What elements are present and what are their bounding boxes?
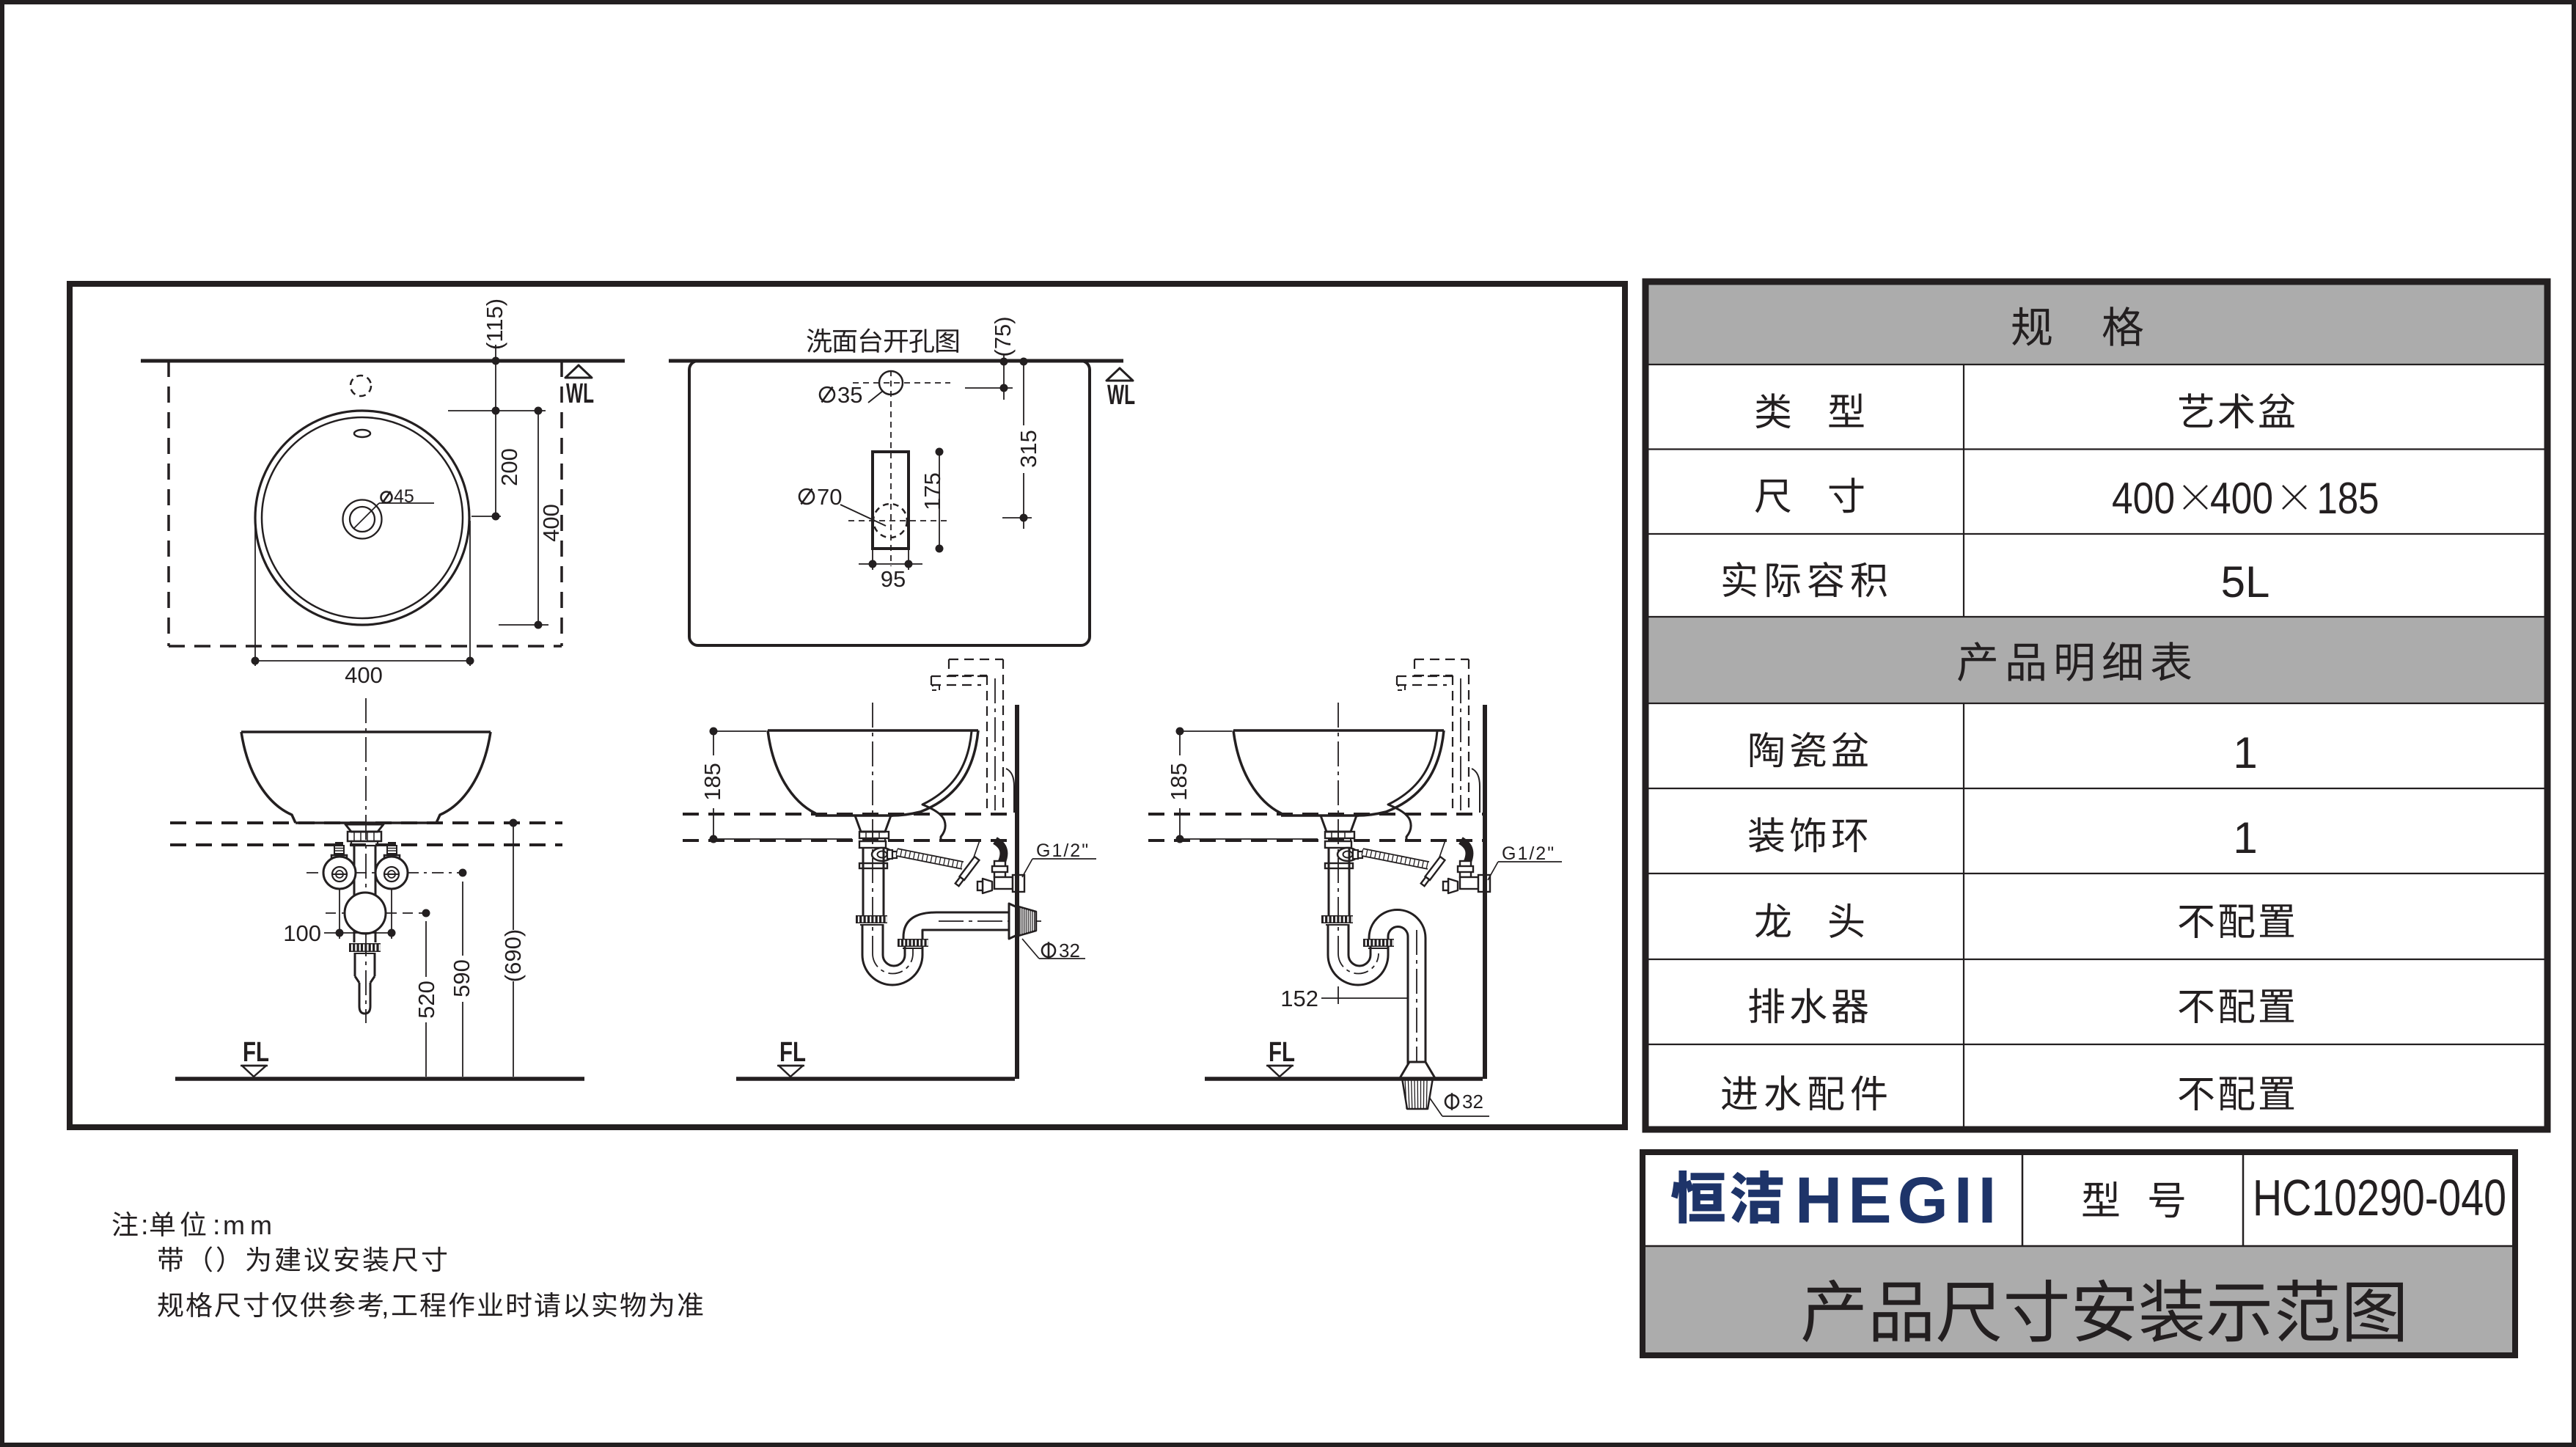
svg-text:WL: WL [566, 378, 594, 409]
svg-text:mm: mm [223, 1210, 277, 1240]
svg-text:1: 1 [2233, 813, 2257, 862]
svg-text:1: 1 [2233, 728, 2257, 777]
svg-text:HC10290-040: HC10290-040 [2253, 1169, 2506, 1226]
svg-text:185: 185 [1166, 763, 1192, 801]
svg-text:100: 100 [283, 920, 321, 946]
svg-text:45: 45 [394, 486, 414, 507]
svg-text:400: 400 [2112, 474, 2175, 523]
svg-text:70: 70 [817, 484, 842, 510]
svg-text:FL: FL [243, 1037, 269, 1068]
svg-text::: : [213, 1210, 221, 1241]
svg-text:G1/2": G1/2" [1502, 843, 1555, 864]
svg-text:152: 152 [1280, 986, 1318, 1011]
svg-text:185: 185 [2317, 474, 2379, 523]
svg-text:95: 95 [881, 566, 906, 592]
svg-text:175: 175 [920, 472, 945, 510]
svg-text::: : [141, 1210, 149, 1241]
svg-text:FL: FL [1269, 1037, 1295, 1068]
svg-text:G1/2": G1/2" [1036, 840, 1090, 861]
svg-text:590: 590 [449, 959, 474, 997]
svg-text:200: 200 [496, 448, 522, 486]
svg-text:400: 400 [538, 504, 564, 542]
svg-text:,: , [381, 1291, 389, 1322]
svg-text:(115): (115) [482, 298, 507, 350]
svg-text:32: 32 [1059, 939, 1080, 961]
svg-text:400: 400 [345, 662, 383, 688]
svg-text:185: 185 [700, 763, 725, 801]
svg-text:(75): (75) [990, 316, 1016, 356]
svg-text:520: 520 [414, 981, 439, 1019]
svg-text:WL: WL [1107, 380, 1135, 411]
svg-text:32: 32 [1462, 1091, 1483, 1113]
svg-text:5L: 5L [2221, 557, 2270, 607]
svg-text:FL: FL [779, 1037, 806, 1068]
svg-text:(690): (690) [500, 929, 526, 982]
svg-text:400: 400 [2210, 474, 2273, 523]
svg-text:35: 35 [837, 382, 862, 408]
svg-text:HEGII: HEGII [1795, 1163, 2002, 1237]
svg-text:315: 315 [1016, 430, 1041, 468]
